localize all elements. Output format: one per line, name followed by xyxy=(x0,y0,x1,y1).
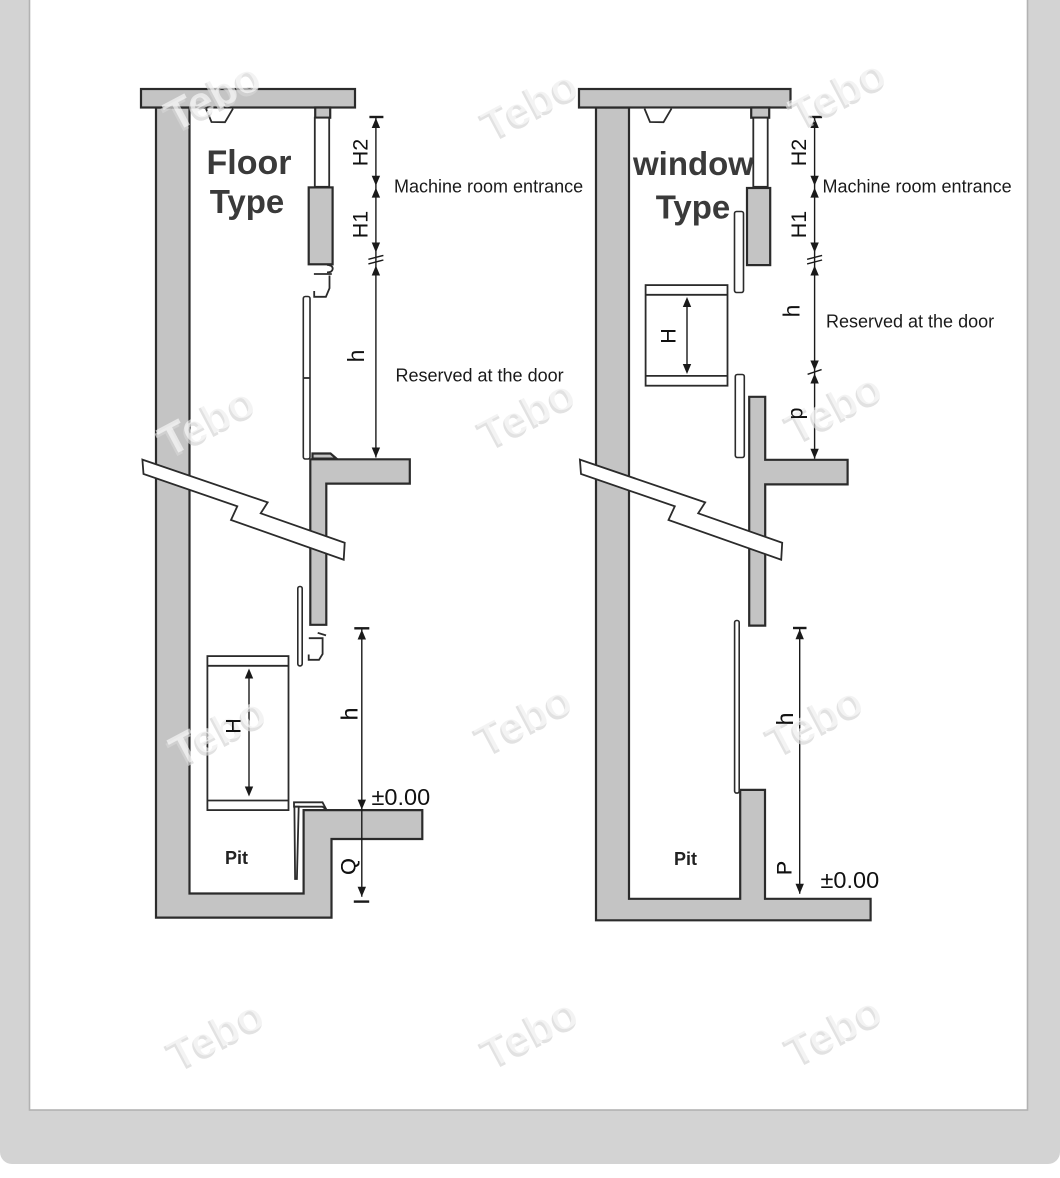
svg-text:window: window xyxy=(632,145,754,182)
svg-text:Machine room entrance: Machine room entrance xyxy=(823,177,1012,197)
svg-text:h: h xyxy=(779,305,805,318)
svg-text:h: h xyxy=(772,713,798,726)
svg-text:H2: H2 xyxy=(787,139,811,166)
svg-text:h: h xyxy=(337,708,363,721)
svg-text:Machine room entrance: Machine room entrance xyxy=(394,177,583,197)
svg-text:±0.00: ±0.00 xyxy=(372,784,431,810)
svg-text:Reserved at the door: Reserved at the door xyxy=(826,312,994,332)
svg-text:H2: H2 xyxy=(349,139,373,166)
svg-text:p: p xyxy=(784,407,808,419)
svg-text:H1: H1 xyxy=(349,211,373,238)
svg-text:±0.00: ±0.00 xyxy=(821,867,880,893)
svg-text:Q: Q xyxy=(337,858,361,875)
svg-text:P: P xyxy=(773,861,797,875)
svg-text:Pit: Pit xyxy=(674,849,697,869)
svg-text:Floor: Floor xyxy=(207,144,292,182)
svg-text:H: H xyxy=(222,718,246,734)
svg-text:Pit: Pit xyxy=(225,848,248,868)
svg-text:h: h xyxy=(343,350,369,363)
svg-text:Type: Type xyxy=(210,183,285,220)
svg-text:H: H xyxy=(657,328,681,344)
svg-text:H1: H1 xyxy=(787,211,811,238)
svg-text:Type: Type xyxy=(656,189,731,226)
